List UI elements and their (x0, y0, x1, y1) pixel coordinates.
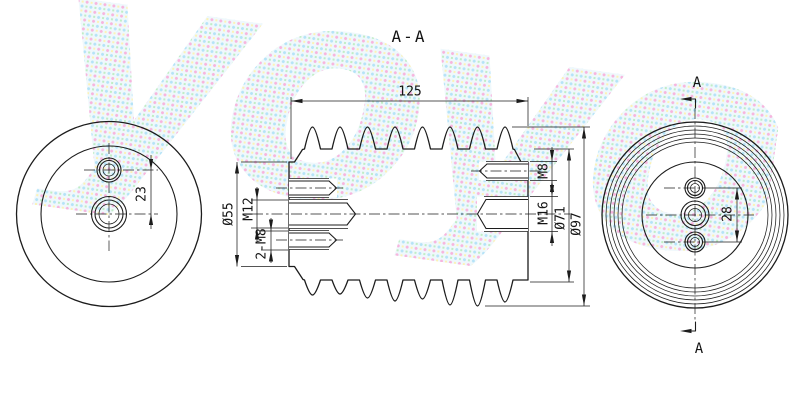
dim-thread-m12-label: M12 (243, 197, 256, 220)
cutting-plane-mark-top (680, 97, 696, 108)
drawing-sheet: yoyo (0, 0, 800, 400)
dim-thread-m8-label: M8 (538, 163, 551, 179)
right-end-view (602, 97, 788, 333)
dim-hole-spacing-28-label: 28 (722, 206, 735, 222)
left-end-view (17, 122, 202, 307)
cutting-plane-mark-bottom (680, 322, 696, 333)
section-title: A-A (392, 29, 427, 45)
dim-core-diameter-label: Ø55 (223, 202, 236, 225)
technical-drawing-svg (0, 0, 800, 400)
dim-shed-inner-label: Ø71 (555, 206, 568, 229)
dim-length-label: 125 (398, 86, 421, 99)
cutting-plane-label-top: A (693, 76, 701, 90)
dim-thread-m16-label: M16 (538, 201, 551, 224)
dim-shed-outer-label: Ø97 (571, 212, 584, 235)
dim-hole-spacing-23-label: 23 (136, 186, 149, 202)
cutting-plane-label-bottom: A (695, 342, 703, 356)
dim-thread-2m8-label: 2-M8 (256, 228, 269, 259)
